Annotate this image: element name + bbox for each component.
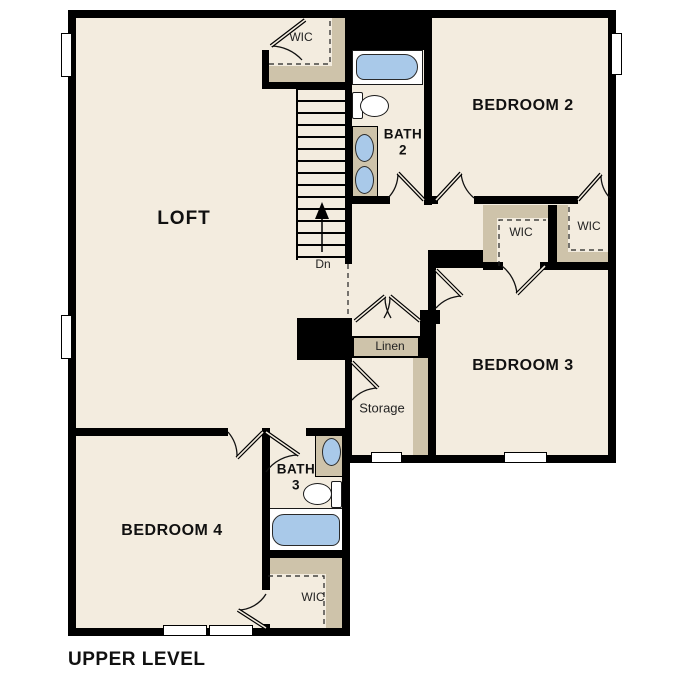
- toilet-tank-bath3: [331, 481, 342, 508]
- wall-stair-east: [345, 18, 352, 264]
- window-bedroom4-a: [163, 625, 207, 636]
- wall-bath2-north: [352, 18, 424, 50]
- sink-bath2-a: [355, 134, 374, 162]
- window-bedroom2-right: [611, 33, 622, 75]
- bath3-number: 3: [277, 477, 316, 493]
- wall-wic-top-south: [262, 82, 352, 89]
- wall-bedroom3-west: [428, 322, 436, 458]
- wall-bedroom4-north: [68, 428, 228, 436]
- room-label-bedroom4: BEDROOM 4: [121, 522, 222, 540]
- label-stairs-dn: Dn: [315, 258, 330, 272]
- toilet-bowl-bath2: [360, 95, 389, 117]
- wall-bath2-south: [345, 196, 390, 204]
- wall-bedroom4-east-stub: [262, 624, 270, 632]
- wall-bedroom2-south-c: [610, 196, 616, 204]
- bath2-number: 2: [384, 142, 423, 158]
- wall-bath2-east: [424, 18, 432, 205]
- bath3-name: BATH: [277, 461, 316, 477]
- label-wic-bedroom3: WIC: [509, 226, 532, 240]
- label-wic-top: WIC: [289, 31, 312, 45]
- label-wic-bedroom4: WIC: [301, 591, 324, 605]
- wall-hall-west: [428, 268, 436, 316]
- room-label-bath2: BATH 2: [384, 126, 423, 157]
- window-loft-left-top: [61, 33, 72, 77]
- window-bedroom4-b: [209, 625, 253, 636]
- label-storage: Storage: [359, 402, 405, 417]
- staircase: [296, 88, 347, 260]
- window-storage: [371, 452, 402, 463]
- wall-exterior-bottom: [68, 628, 348, 636]
- wall-exterior-top: [68, 10, 616, 18]
- bathtub-bath3: [272, 514, 340, 546]
- room-label-bedroom2: BEDROOM 2: [472, 97, 573, 115]
- page-title: UPPER LEVEL: [68, 649, 205, 671]
- label-wic-bedroom2: WIC: [577, 220, 600, 234]
- floor-plan: LOFT BEDROOM 2 BEDROOM 3 BEDROOM 4 BATH …: [0, 0, 687, 687]
- room-label-loft: LOFT: [157, 208, 211, 230]
- shelf-wic-bedroom4-east: [326, 558, 342, 628]
- wall-chase-block: [297, 318, 352, 360]
- wall-bedroom2-south-b: [474, 196, 578, 204]
- room-label-bedroom3: BEDROOM 3: [472, 357, 573, 375]
- label-linen: Linen: [375, 340, 404, 354]
- wall-wic-bedroom3-south-a: [483, 262, 503, 270]
- wall-exterior-right: [608, 10, 616, 463]
- wall-bath3-south: [262, 550, 350, 558]
- wall-wic-bedroom2-south: [548, 262, 616, 270]
- bath2-name: BATH: [384, 126, 423, 142]
- room-label-bath3: BATH 3: [277, 461, 316, 492]
- sink-bath3: [322, 438, 341, 466]
- wall-bedroom4-east: [262, 428, 270, 590]
- sink-bath2-b: [355, 166, 374, 194]
- wall-bath3-east: [342, 428, 350, 636]
- wall-linen-east: [420, 316, 428, 358]
- wall-hall-south: [428, 250, 483, 268]
- wall-wic-bedroom3-south-b: [540, 262, 548, 270]
- shelf-storage-east: [413, 358, 428, 455]
- wall-wic-divider: [548, 205, 557, 270]
- shelf-wic-top-south: [269, 66, 346, 82]
- wall-bedroom2-south-a: [424, 196, 438, 204]
- bathtub-bath2: [356, 54, 418, 80]
- window-loft-left-mid: [61, 315, 72, 359]
- window-bedroom3: [504, 452, 547, 463]
- shelf-wic-bedroom3-north: [483, 205, 548, 218]
